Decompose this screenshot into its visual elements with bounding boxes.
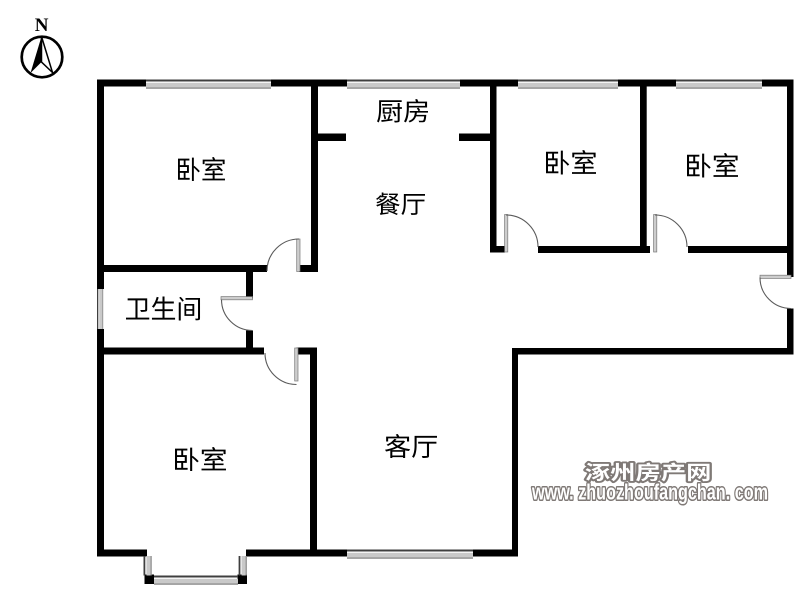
- svg-text:N: N: [35, 15, 49, 36]
- svg-text:www. zhuozhoufangchan. com: www. zhuozhoufangchan. com: [531, 480, 768, 505]
